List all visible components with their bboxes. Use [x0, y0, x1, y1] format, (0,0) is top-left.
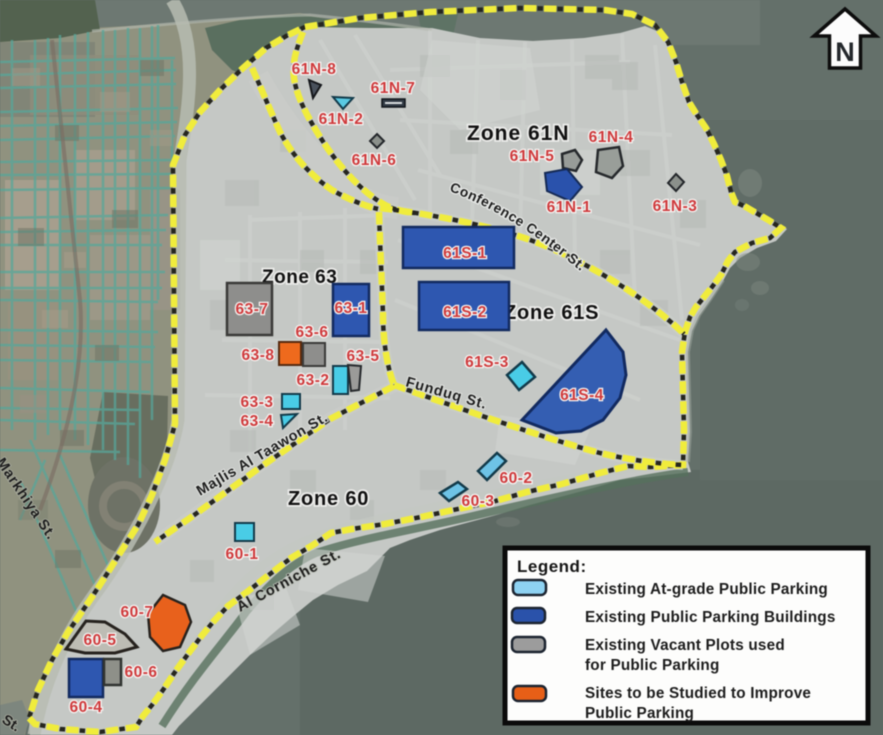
svg-text:63-8: 63-8: [241, 347, 274, 364]
svg-text:63-6: 63-6: [295, 324, 328, 341]
svg-text:61N-5: 61N-5: [510, 148, 555, 165]
svg-text:63-2: 63-2: [296, 372, 329, 389]
svg-text:60-6: 60-6: [124, 664, 157, 681]
svg-text:Existing Vacant Plots used: Existing Vacant Plots used: [585, 637, 785, 654]
svg-text:61N-8: 61N-8: [292, 61, 337, 78]
svg-text:for Public Parking: for Public Parking: [585, 657, 720, 674]
svg-text:61S-4: 61S-4: [560, 387, 604, 404]
svg-text:63-1: 63-1: [334, 300, 367, 317]
svg-text:63-5: 63-5: [346, 348, 379, 365]
svg-text:61S-2: 61S-2: [443, 304, 487, 321]
svg-text:Legend:: Legend:: [517, 557, 587, 576]
svg-text:Existing At-grade Public Parki: Existing At-grade Public Parking: [585, 581, 828, 598]
svg-text:60-3: 60-3: [461, 493, 494, 510]
svg-text:61N-1: 61N-1: [547, 199, 592, 216]
svg-text:Zone 60: Zone 60: [288, 488, 369, 510]
svg-text:Zone 61N: Zone 61N: [467, 122, 570, 145]
svg-text:Zone 61S: Zone 61S: [504, 302, 599, 324]
svg-text:60-5: 60-5: [83, 632, 116, 649]
svg-text:63-4: 63-4: [240, 413, 273, 430]
svg-text:61N-3: 61N-3: [653, 198, 698, 215]
svg-text:63-3: 63-3: [240, 394, 273, 411]
svg-text:60-2: 60-2: [499, 470, 532, 487]
svg-text:61N-2: 61N-2: [319, 111, 364, 128]
svg-text:61N-6: 61N-6: [352, 152, 397, 169]
svg-text:61N-4: 61N-4: [589, 129, 634, 146]
svg-text:61N-7: 61N-7: [371, 80, 416, 97]
svg-text:61S-3: 61S-3: [465, 354, 509, 371]
svg-text:61S-1: 61S-1: [443, 245, 487, 262]
svg-text:63-7: 63-7: [235, 301, 268, 318]
svg-text:Existing Public Parking Buildi: Existing Public Parking Buildings: [585, 609, 836, 626]
svg-text:N: N: [835, 37, 855, 67]
svg-text:60-7: 60-7: [120, 604, 153, 621]
svg-text:Public Parking: Public Parking: [585, 705, 694, 722]
svg-text:Zone 63: Zone 63: [262, 267, 337, 288]
svg-text:60-4: 60-4: [69, 699, 102, 716]
svg-text:60-1: 60-1: [225, 546, 258, 563]
svg-text:Sites to be Studied to Improve: Sites to be Studied to Improve: [585, 685, 811, 702]
